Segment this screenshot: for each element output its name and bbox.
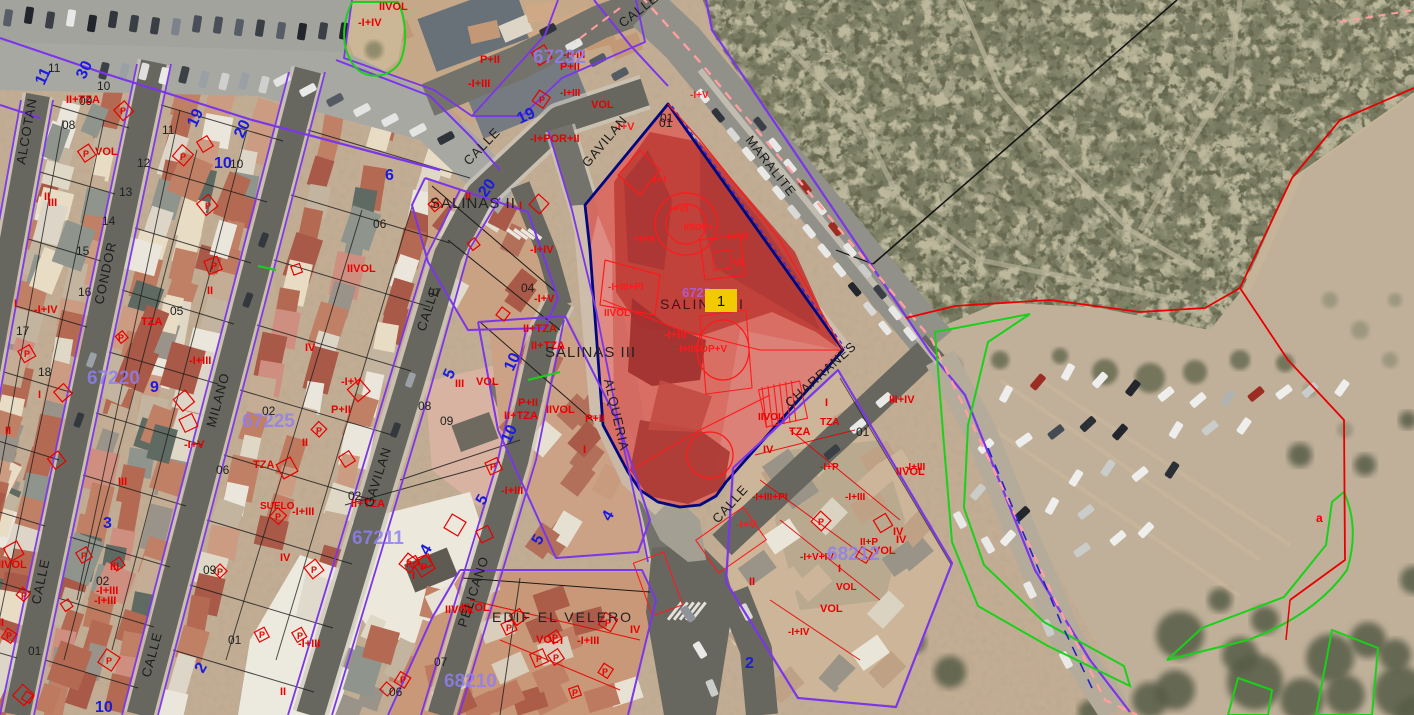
svg-text:-I+III: -I+III	[501, 485, 523, 497]
svg-text:6: 6	[385, 167, 394, 184]
svg-text:IV: IV	[280, 552, 291, 564]
svg-text:67211: 67211	[352, 528, 404, 549]
svg-text:-I+III: -I+III	[560, 88, 581, 99]
svg-text:III: III	[48, 197, 57, 209]
svg-text:11: 11	[162, 123, 175, 137]
svg-text:III: III	[118, 476, 127, 488]
svg-text:SALINAS II: SALINAS II	[430, 195, 516, 212]
svg-text:-I+III: -I+III	[298, 638, 320, 650]
svg-text:12: 12	[137, 156, 151, 170]
svg-text:IV: IV	[763, 444, 774, 456]
svg-text:06: 06	[389, 685, 403, 699]
svg-text:VOL: VOL	[476, 376, 499, 388]
svg-text:02: 02	[348, 489, 362, 503]
svg-text:1: 1	[717, 293, 725, 310]
svg-text:VOL: VOL	[95, 146, 118, 158]
svg-text:3: 3	[103, 515, 112, 532]
svg-text:P: P	[539, 95, 545, 105]
svg-text:09: 09	[203, 563, 217, 577]
svg-text:-I+III+PI: -I+III+PI	[608, 282, 644, 293]
svg-text:VOL: VOL	[820, 603, 843, 615]
svg-text:04: 04	[521, 281, 535, 295]
svg-text:+I+II: +I+II	[634, 234, 654, 245]
svg-text:P: P	[316, 426, 322, 436]
svg-text:-I+III: -I+III	[664, 329, 686, 341]
svg-text:IV: IV	[896, 534, 907, 546]
svg-text:I: I	[412, 570, 415, 582]
svg-text:10: 10	[230, 157, 244, 171]
svg-text:II: II	[302, 437, 308, 449]
svg-text:-I+V: -I+V	[184, 439, 205, 451]
svg-text:-I+I: -I+I	[650, 174, 666, 186]
svg-text:-I+V: -I+V	[736, 519, 757, 531]
svg-text:16: 16	[78, 285, 92, 299]
svg-text:TZA: TZA	[141, 316, 162, 328]
svg-text:-I+III: -I+III	[292, 506, 314, 518]
svg-text:I: I	[825, 397, 828, 409]
svg-text:P: P	[572, 688, 578, 698]
svg-text:P+II: P+II	[585, 413, 605, 425]
svg-text:01: 01	[856, 425, 870, 439]
svg-text:EDIF EL VELERO: EDIF EL VELERO	[492, 609, 633, 625]
svg-text:01: 01	[28, 644, 42, 658]
svg-text:P+II: P+II	[480, 54, 500, 66]
svg-text:13: 13	[119, 185, 133, 199]
svg-text:10: 10	[97, 79, 111, 93]
svg-text:P: P	[211, 261, 217, 271]
svg-text:2: 2	[745, 655, 754, 672]
svg-text:08: 08	[418, 399, 432, 413]
svg-text:II: II	[280, 686, 286, 698]
svg-text:10: 10	[95, 699, 113, 715]
svg-text:IIVOL: IIVOL	[896, 466, 925, 478]
svg-text:67220: 67220	[87, 368, 140, 389]
svg-text:P+II: P+II	[518, 397, 538, 409]
svg-text:II: II	[207, 285, 213, 297]
svg-text:07: 07	[434, 655, 448, 669]
svg-text:P: P	[400, 675, 406, 685]
svg-text:15: 15	[76, 244, 90, 258]
svg-text:IIVOL: IIVOL	[546, 404, 575, 416]
svg-text:-I+III+PI: -I+III+PI	[752, 492, 788, 503]
svg-text:14: 14	[102, 214, 116, 228]
svg-text:SALINAS III: SALINAS III	[545, 344, 636, 361]
svg-text:-I+IV: -I+IV	[788, 627, 810, 638]
svg-text:68210: 68210	[444, 671, 497, 692]
svg-text:IIVOL: IIVOL	[604, 308, 630, 319]
svg-text:II+TZA: II+TZA	[523, 323, 557, 335]
svg-text:TZA: TZA	[253, 459, 274, 471]
svg-text:I: I	[583, 444, 586, 456]
svg-text:-I+IV: -I+IV	[34, 304, 58, 316]
svg-text:P: P	[311, 565, 317, 575]
svg-text:VOL: VOL	[536, 634, 559, 646]
svg-text:P: P	[24, 349, 30, 359]
svg-text:05: 05	[170, 304, 184, 318]
svg-text:67232: 67232	[533, 47, 586, 68]
svg-text:-I+IISOP+V: -I+IISOP+V	[676, 344, 727, 355]
svg-text:-I+POR+II: -I+POR+II	[530, 133, 580, 145]
svg-text:P: P	[120, 106, 126, 116]
svg-text:P: P	[205, 201, 211, 211]
svg-text:-I+III: -I+III	[577, 635, 599, 647]
svg-text:P: P	[106, 656, 112, 666]
svg-text:-I+V: -I+V	[534, 293, 555, 305]
svg-text:-I+V: -I+V	[690, 90, 709, 101]
svg-text:P: P	[259, 630, 265, 640]
svg-text:P: P	[83, 149, 89, 159]
svg-text:P: P	[490, 462, 496, 472]
svg-text:IISOP+: IISOP+	[684, 222, 713, 232]
svg-text:IIVOL: IIVOL	[0, 559, 27, 571]
svg-text:11: 11	[48, 61, 61, 75]
svg-text:II+TZA: II+TZA	[504, 410, 538, 422]
svg-text:IIVOL: IIVOL	[758, 412, 784, 423]
svg-text:P+II: P+II	[331, 404, 351, 416]
svg-text:SUELO: SUELO	[260, 501, 295, 512]
svg-text:68212: 68212	[827, 544, 880, 565]
svg-text:TZA: TZA	[820, 417, 839, 428]
svg-text:I+VI: I+VI	[670, 204, 688, 215]
svg-text:06: 06	[216, 463, 230, 477]
svg-text:VOL: VOL	[836, 582, 857, 593]
svg-text:II: II	[889, 394, 895, 406]
svg-text:-I+IV: -I+IV	[358, 17, 382, 29]
svg-text:II: II	[749, 576, 755, 588]
svg-text:IIVOL: IIVOL	[379, 1, 408, 13]
svg-text:P: P	[217, 567, 223, 577]
svg-text:I: I	[519, 200, 522, 212]
svg-text:I+VI: I+VI	[728, 231, 748, 243]
svg-text:P: P	[275, 512, 281, 522]
svg-text:18: 18	[38, 365, 52, 379]
svg-text:-I+IV: -I+IV	[530, 244, 554, 256]
svg-text:II: II	[0, 617, 4, 629]
svg-text:VI: VI	[733, 257, 743, 269]
svg-text:9: 9	[150, 379, 159, 396]
svg-text:17: 17	[16, 324, 30, 338]
svg-text:P: P	[6, 631, 12, 641]
svg-text:P: P	[21, 591, 27, 601]
svg-text:a: a	[1316, 511, 1323, 525]
svg-text:07: 07	[428, 286, 442, 300]
svg-text:-I+III: -I+III	[468, 78, 490, 90]
svg-text:I: I	[14, 298, 17, 310]
svg-text:I: I	[38, 389, 41, 401]
svg-text:09: 09	[79, 94, 93, 108]
svg-text:-I+III: -I+III	[845, 492, 866, 503]
svg-text:P: P	[602, 667, 608, 677]
svg-text:09: 09	[440, 414, 454, 428]
svg-text:01: 01	[660, 111, 674, 125]
svg-text:02: 02	[96, 574, 110, 588]
svg-text:-I+III: -I+III	[189, 355, 211, 367]
svg-text:08: 08	[62, 118, 76, 132]
svg-text:P: P	[180, 152, 186, 162]
svg-text:IV: IV	[630, 624, 641, 636]
svg-text:IV: IV	[305, 342, 316, 354]
svg-text:P: P	[553, 653, 559, 663]
svg-text:IIVOL: IIVOL	[347, 263, 376, 275]
svg-text:I: I	[560, 635, 563, 647]
svg-text:II: II	[5, 425, 11, 437]
svg-text:P: P	[118, 333, 124, 343]
svg-text:06: 06	[373, 217, 387, 231]
svg-text:01: 01	[228, 633, 242, 647]
svg-text:P: P	[81, 551, 87, 561]
svg-text:02: 02	[262, 404, 276, 418]
svg-text:P: P	[406, 559, 412, 569]
svg-text:VOL: VOL	[591, 99, 614, 111]
